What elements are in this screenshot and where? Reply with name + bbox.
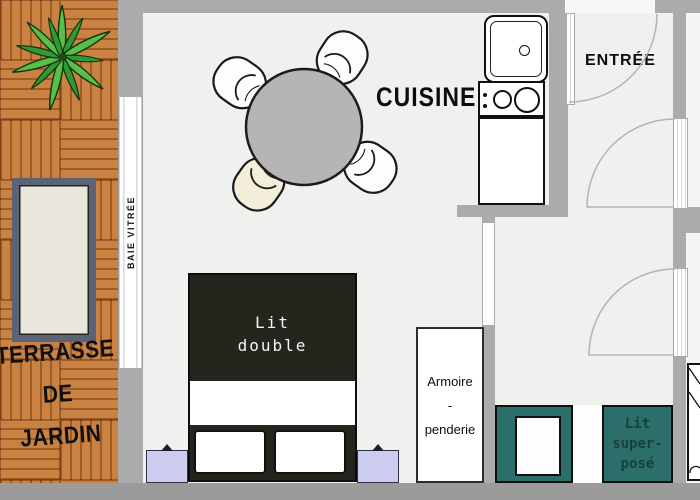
edge-fixture <box>687 363 700 481</box>
bay-window-label: BAIE VITRÉE <box>126 196 136 269</box>
right-door-upper-leaf <box>673 118 688 209</box>
bunk-bed-left <box>495 405 573 483</box>
chair-left <box>205 49 274 117</box>
entry-door-opening <box>565 0 655 13</box>
chair-top-right <box>309 23 376 92</box>
wall-right-room-divider <box>686 207 700 233</box>
sun-lounger <box>12 178 96 342</box>
right-door-lower-leaf <box>673 268 688 357</box>
double-bed-label-line1: Lit <box>190 311 355 334</box>
chair-bottom-right <box>336 134 405 202</box>
burner-large <box>514 87 540 113</box>
parquet-tile <box>0 120 60 180</box>
wall-below-kitchen <box>457 205 568 217</box>
double-bed-label: Lit double <box>190 311 355 357</box>
entrance-label: ENTRÉE <box>585 52 656 70</box>
terrace-label-line3: JARDIN <box>0 408 126 465</box>
parquet-tile <box>60 0 118 60</box>
bed-sheet <box>190 381 355 425</box>
bunk-bed-gap <box>573 405 602 483</box>
bay-window: BAIE VITRÉE <box>118 97 143 368</box>
chair-bottom-left <box>225 150 293 219</box>
parquet-tile <box>0 60 60 120</box>
bunk-bed-right: Lit super- posé <box>602 405 673 483</box>
nightstand-knob <box>372 444 384 451</box>
pillow-right <box>274 430 346 474</box>
wall-left-lower <box>118 368 143 485</box>
kitchen-label: CUISINE <box>376 82 476 113</box>
wardrobe-label-line3: penderie <box>425 422 476 437</box>
sink-icon <box>484 15 548 83</box>
bunk-bed-label-line1: Lit <box>625 414 650 434</box>
bunk-bed-label-line3: posé <box>621 454 655 474</box>
wall-top <box>118 0 565 13</box>
parquet-tile <box>60 120 118 180</box>
cooktop-knob <box>483 93 487 97</box>
wardrobe: Armoire - penderie <box>416 327 484 483</box>
burner-small <box>493 90 512 109</box>
wall-top-right <box>655 0 700 13</box>
terrace-label: TERRASSE DE JARDIN <box>0 328 126 463</box>
nightstand-right <box>357 450 399 483</box>
wall-left-upper <box>118 0 143 97</box>
wall-right-middle <box>673 207 686 268</box>
pillow-left <box>194 430 266 474</box>
wardrobe-label-line2: - <box>448 398 452 413</box>
bunk-bed-mattress <box>515 416 561 476</box>
wall-right-lower <box>673 355 686 483</box>
kitchen-counter <box>478 117 545 205</box>
nightstand-left <box>146 450 188 483</box>
bunk-bed-label-line2: super- <box>612 434 663 454</box>
sink-drain <box>519 45 530 56</box>
entry-door-leaf <box>566 13 575 105</box>
cooktop-icon <box>478 81 545 117</box>
divider-door-opening <box>483 223 494 325</box>
wardrobe-label-line1: Armoire <box>427 374 473 389</box>
cooktop-knob <box>483 104 487 108</box>
wall-bottom <box>0 483 700 500</box>
wall-right-upper <box>673 13 686 118</box>
parquet-tile <box>0 0 60 60</box>
dining-table <box>246 69 362 185</box>
nightstand-knob <box>161 444 173 451</box>
parquet-tile <box>60 60 118 120</box>
sink-basin <box>490 21 542 77</box>
apartment-floor-plan: TERRASSE DE JARDIN BAIE VITRÉE CUISINE E… <box>0 0 700 500</box>
double-bed-label-line2: double <box>190 334 355 357</box>
double-bed: Lit double <box>188 273 357 482</box>
dining-chairs <box>205 23 405 218</box>
